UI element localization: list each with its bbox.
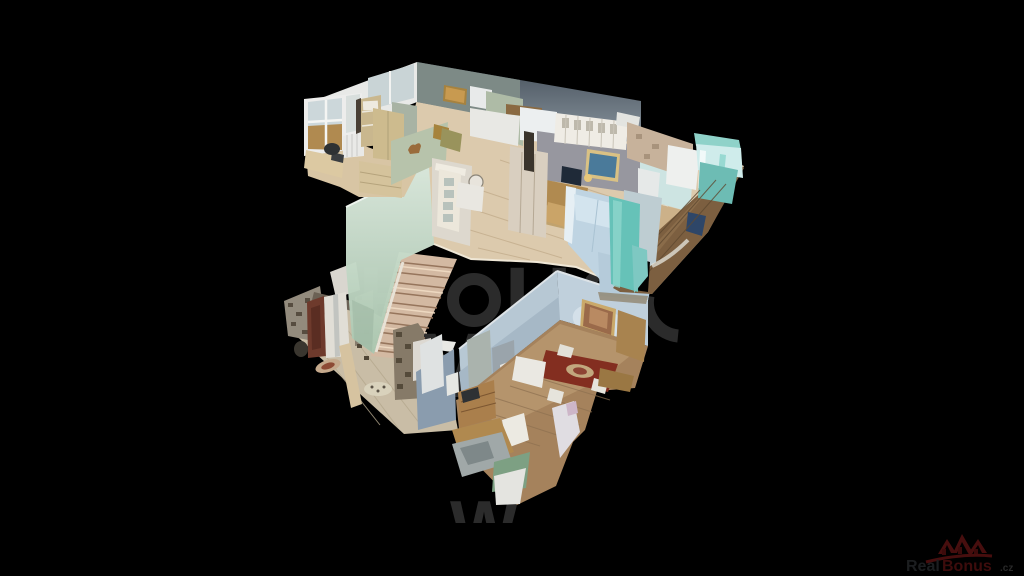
svg-text:Real: Real — [906, 558, 940, 575]
svg-text:Bonus: Bonus — [942, 558, 992, 575]
svg-text:.cz: .cz — [1000, 563, 1013, 574]
